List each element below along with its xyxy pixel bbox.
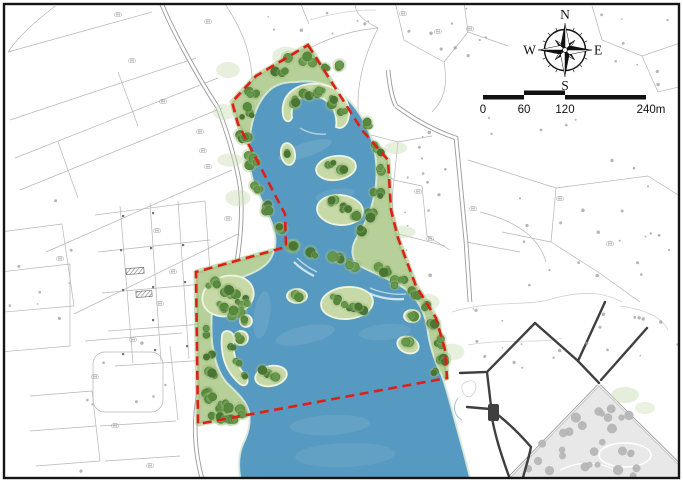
compass-w: W	[523, 43, 536, 58]
scale-tick-60: 60	[518, 104, 531, 116]
scale-end-label: 240m	[637, 104, 666, 116]
scale-tick-120: 120	[555, 104, 574, 116]
site-plan-map: (田)(田)(田)(田)(田)(田)(田)(田)(田)(田)(田)(田)(田)(…	[0, 0, 683, 482]
map-frame: (田)(田)(田)(田)(田)(田)(田)(田)(田)(田)(田)(田)(田)(…	[0, 0, 683, 482]
compass-n: N	[560, 7, 570, 22]
compass-e: E	[594, 43, 602, 58]
parking-lot	[488, 404, 499, 421]
scale-tick-0: 0	[480, 104, 486, 116]
